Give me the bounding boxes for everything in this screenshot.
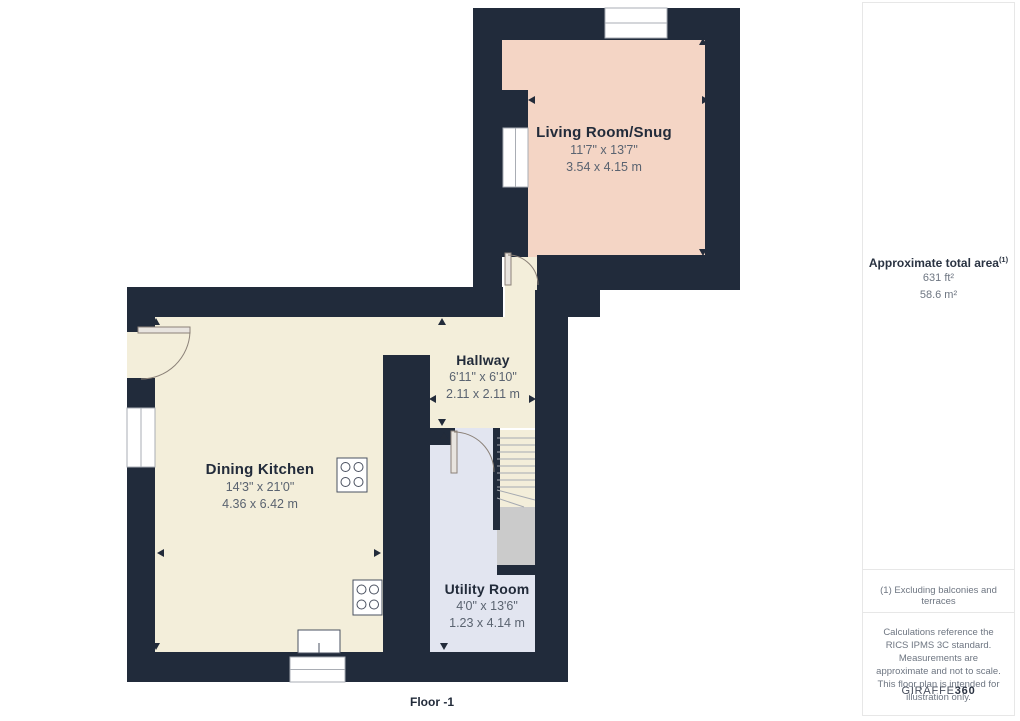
total-area-metric: 58.6 m² xyxy=(863,287,1014,304)
wall xyxy=(127,467,155,682)
stairs-landing xyxy=(497,507,535,565)
floor-number-label: Floor -1 xyxy=(332,695,532,709)
room-dim-metric: 1.23 x 4.14 m xyxy=(407,615,567,631)
total-area-imperial: 631 ft² xyxy=(863,270,1014,287)
footnote-text: (1) Excluding balconies and terraces xyxy=(863,569,1014,607)
wall xyxy=(473,8,502,317)
wall xyxy=(497,565,535,575)
wall xyxy=(127,652,568,682)
room-dim-imperial: 14'3" x 21'0" xyxy=(160,479,360,495)
room-label-dining-kitchen: Dining Kitchen 14'3" x 21'0" 4.36 x 6.42… xyxy=(160,461,360,512)
wall xyxy=(127,287,503,317)
room-dim-metric: 4.36 x 6.42 m xyxy=(160,496,360,512)
door-opening xyxy=(127,332,155,378)
footnote-reference: (1) xyxy=(999,255,1008,264)
wall xyxy=(428,428,455,445)
wall xyxy=(473,8,740,40)
room-dim-metric: 3.54 x 4.15 m xyxy=(504,159,704,175)
room-name: Hallway xyxy=(403,352,563,368)
total-area-title-text: Approximate total area xyxy=(869,256,999,270)
room-dim-metric: 2.11 x 2.11 m xyxy=(403,386,563,402)
brand-name: GIRAFFE xyxy=(901,685,954,697)
stairs-treads-floor xyxy=(497,430,535,490)
giraffe360-logo: GIRAFFE360 xyxy=(863,685,1014,698)
room-name: Dining Kitchen xyxy=(160,461,360,478)
room-name: Living Room/Snug xyxy=(504,124,704,141)
wall xyxy=(127,287,155,332)
info-sidebar: Approximate total area(1) 631 ft² 58.6 m… xyxy=(862,2,1015,716)
doorway-passage-floor xyxy=(505,257,537,322)
window-icon xyxy=(127,408,155,467)
disclaimer-block: Calculations reference the RICS IPMS 3C … xyxy=(863,612,1014,715)
wall xyxy=(705,8,740,290)
wall xyxy=(493,428,500,530)
room-dim-imperial: 11'7" x 13'7" xyxy=(504,142,704,158)
total-area-block: Approximate total area(1) 631 ft² 58.6 m… xyxy=(863,255,1014,304)
room-name: Utility Room xyxy=(407,581,567,597)
floor-plan-page: Living Room/Snug 11'7" x 13'7" 3.54 x 4.… xyxy=(0,0,1020,721)
stairs-winder-floor xyxy=(497,490,535,507)
room-label-hallway: Hallway 6'11" x 6'10" 2.11 x 2.11 m xyxy=(403,352,563,402)
room-dim-imperial: 6'11" x 6'10" xyxy=(403,369,563,385)
total-area-title: Approximate total area(1) xyxy=(863,255,1014,270)
room-label-utility-room: Utility Room 4'0" x 13'6" 1.23 x 4.14 m xyxy=(407,581,567,631)
room-dim-imperial: 4'0" x 13'6" xyxy=(407,598,567,614)
wall xyxy=(127,378,155,408)
brand-suffix: 360 xyxy=(955,685,976,697)
room-label-living-room-snug: Living Room/Snug 11'7" x 13'7" 3.54 x 4.… xyxy=(504,124,704,175)
